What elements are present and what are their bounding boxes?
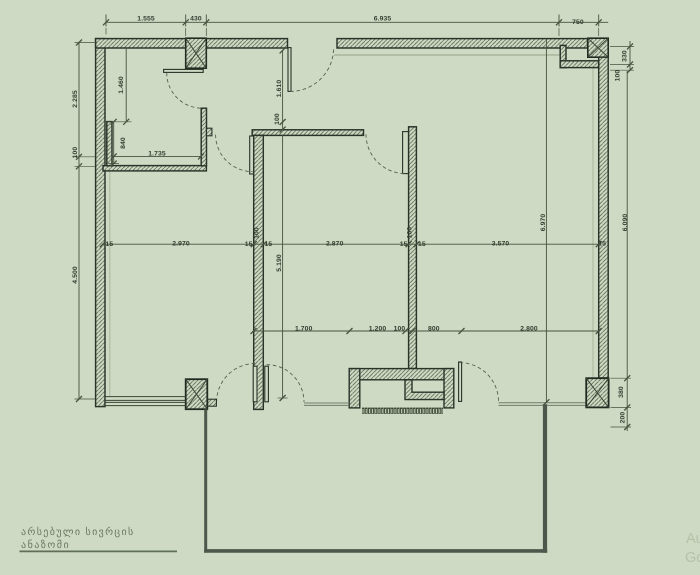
svg-text:Go: Go [685,550,700,566]
svg-text:2.870: 2.870 [326,240,344,247]
svg-text:6.935: 6.935 [374,15,392,22]
svg-text:ანაზომი: ანაზომი [21,539,70,551]
svg-text:1.610: 1.610 [276,80,283,98]
svg-text:430: 430 [190,15,202,22]
svg-text:1.555: 1.555 [137,15,155,22]
svg-text:100: 100 [274,113,281,125]
svg-text:15: 15 [245,241,253,248]
svg-text:2.285: 2.285 [72,90,79,108]
svg-text:6.090: 6.090 [622,214,629,232]
svg-text:200: 200 [619,412,626,424]
svg-text:1.200: 1.200 [369,325,387,332]
svg-text:5.190: 5.190 [276,254,283,272]
svg-text:1.735: 1.735 [148,150,166,157]
svg-text:100: 100 [394,325,406,332]
svg-text:1.460: 1.460 [118,76,125,94]
svg-text:330: 330 [621,50,628,62]
svg-text:15: 15 [400,241,408,248]
svg-text:2.970: 2.970 [172,240,190,247]
svg-text:Au: Au [686,531,700,547]
svg-text:3.570: 3.570 [492,240,510,247]
svg-text:15: 15 [418,241,426,248]
svg-text:750: 750 [572,19,584,26]
svg-text:100: 100 [254,227,261,239]
svg-text:2.800: 2.800 [520,325,538,332]
svg-text:380: 380 [618,386,625,398]
svg-text:6.970: 6.970 [540,214,547,232]
svg-text:840: 840 [120,137,127,149]
svg-text:100: 100 [72,147,79,159]
svg-text:100: 100 [615,70,622,82]
svg-text:1.700: 1.700 [295,325,313,332]
svg-text:არსებული სივრცის: არსებული სივრცის [21,526,135,538]
svg-text:100: 100 [407,227,414,239]
svg-text:4.500: 4.500 [72,266,79,284]
svg-text:800: 800 [428,325,440,332]
svg-text:15: 15 [598,240,606,247]
svg-text:15: 15 [106,241,114,248]
svg-text:15: 15 [265,241,273,248]
